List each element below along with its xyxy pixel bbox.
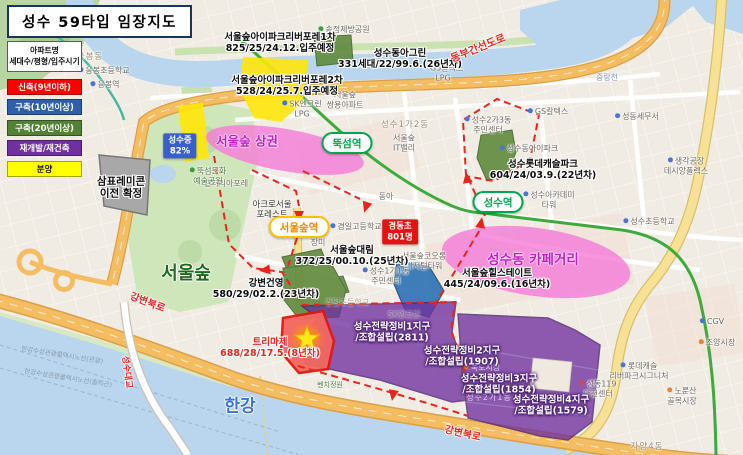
base-map bbox=[0, 0, 743, 455]
seongsu-map-canvas: 응봉체육공원응봉동응봉초등학교응봉역송정제방공원중랑천서울숲쌍용아파트SK엔크린… bbox=[0, 0, 743, 455]
